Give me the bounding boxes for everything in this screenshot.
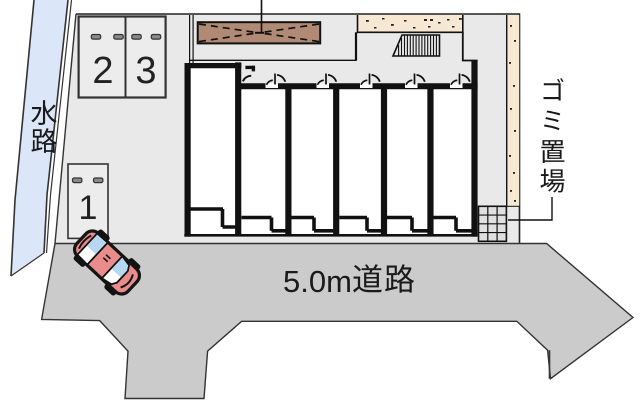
svg-text:5.0m: 5.0m <box>283 264 352 299</box>
svg-text:2: 2 <box>92 50 113 92</box>
svg-text:1: 1 <box>79 189 98 227</box>
svg-text:3: 3 <box>135 50 156 92</box>
